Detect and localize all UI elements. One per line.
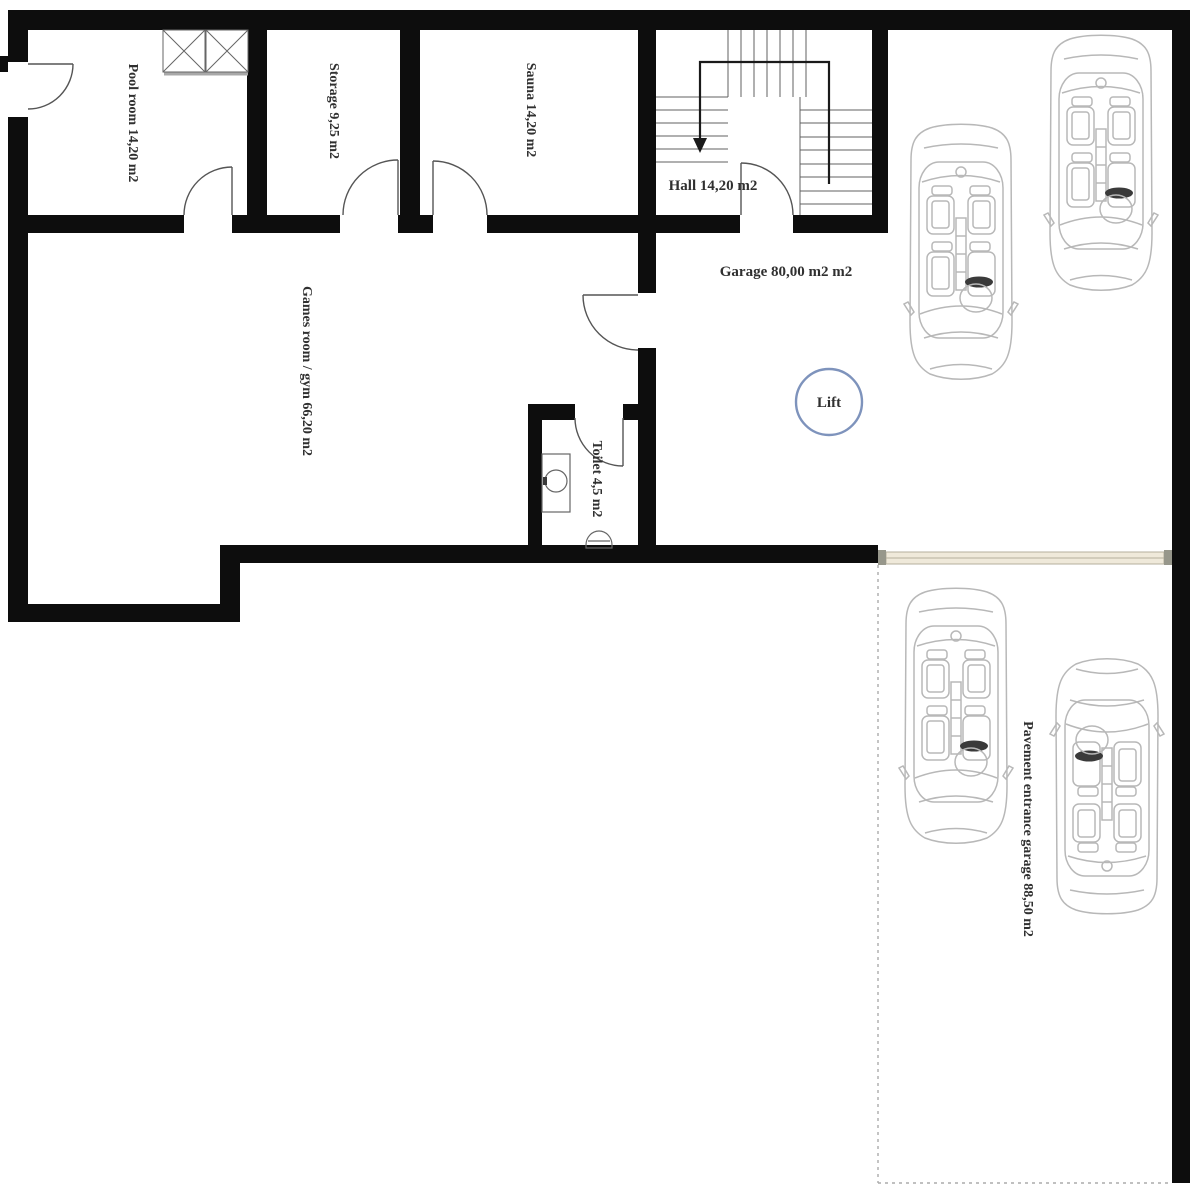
wall-pool-storage (247, 30, 267, 215)
floor-plan-page: Lift Pool room 14,20 m2 Storage 9,25 m2 … (0, 0, 1200, 1190)
wall-storage-sauna (400, 30, 420, 215)
lift-label: Lift (817, 395, 841, 411)
shaft-boxes-icon (163, 30, 248, 74)
floor-plan-drawing: Lift Pool room 14,20 m2 Storage 9,25 m2 … (0, 0, 1200, 1190)
wall-toilet-left (528, 404, 542, 545)
wall-games-garage-upper (638, 233, 656, 293)
wall-top (8, 10, 1190, 30)
wall-hall-right (872, 28, 888, 230)
wall-divider-h-3 (398, 215, 433, 233)
wall-hall-left (638, 28, 656, 215)
wall-divider-h-4 (487, 215, 740, 233)
room-label-pavement: Pavement entrance garage 88,50 m2 (1020, 721, 1035, 937)
room-label-hall: Hall 14,20 m2 (669, 178, 758, 194)
wall-bottom-main (220, 545, 878, 563)
wall-bottom-lower (8, 604, 238, 622)
wall-toilet-top-right (623, 404, 656, 420)
room-label-storage: Storage 9,25 m2 (326, 63, 341, 159)
room-label-pool: Pool room 14,20 m2 (125, 64, 140, 183)
wall-left-stub (0, 56, 8, 72)
wall-games-garage-lower (638, 348, 656, 563)
wall-divider-h-1 (8, 215, 184, 233)
wall-right (1172, 10, 1190, 1183)
wall-left-main (8, 117, 28, 622)
room-label-toilet: Toilet 4,5 m2 (589, 441, 604, 518)
room-label-games-room: Games room / gym 66,20 m2 (299, 286, 314, 456)
room-label-garage: Garage 80,00 m2 m2 (720, 264, 852, 280)
wall-left-upper (8, 10, 28, 62)
room-label-sauna: Sauna 14,20 m2 (523, 63, 538, 158)
garage-door (878, 550, 1172, 565)
wall-toilet-top-left (528, 404, 575, 420)
wall-divider-h-2 (232, 215, 340, 233)
